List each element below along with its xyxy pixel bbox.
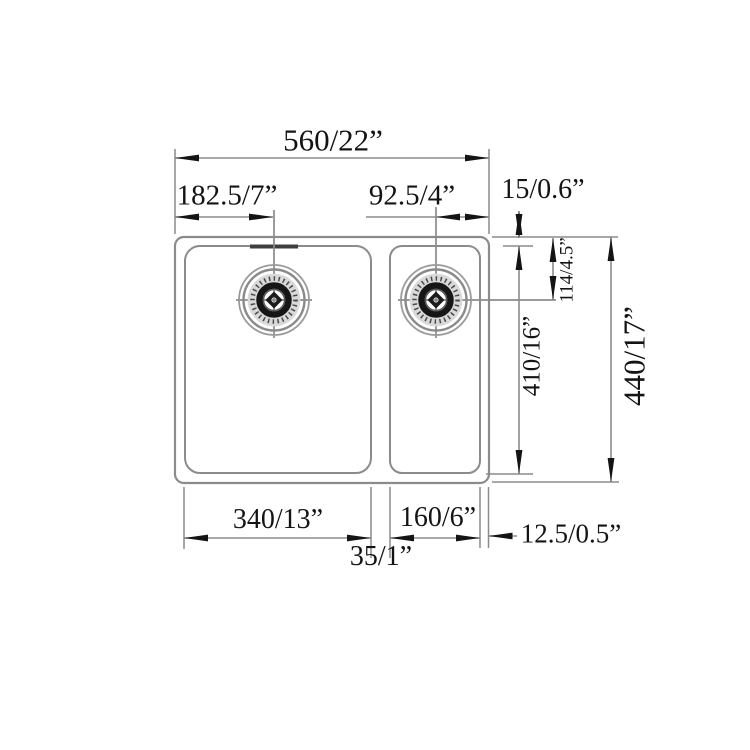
dim-label-right-drain-offset: 92.5/4” xyxy=(369,182,455,211)
dim-label-left-bowl-width: 340/13” xyxy=(233,506,323,534)
dim-label-drain-center-depth: 114/4.5” xyxy=(558,237,577,302)
sink-dimension-drawing: 560/22” 182.5/7” 92.5/4” 15/0.6” 114/4.5… xyxy=(0,0,750,750)
dim-label-overall-depth: 440/17” xyxy=(619,306,650,406)
dim-label-overall-width: 560/22” xyxy=(283,125,383,156)
dim-label-left-drain-offset: 182.5/7” xyxy=(177,182,278,211)
dim-label-divider-width: 35/1” xyxy=(350,543,412,571)
dim-label-rim-top: 15/0.6” xyxy=(501,176,584,204)
dim-label-right-bowl-width: 160/6” xyxy=(400,504,476,532)
dim-label-bowl-depth: 410/16” xyxy=(520,316,545,397)
dim-label-rim-right: 12.5/0.5” xyxy=(521,521,622,548)
sink-body xyxy=(175,237,489,483)
